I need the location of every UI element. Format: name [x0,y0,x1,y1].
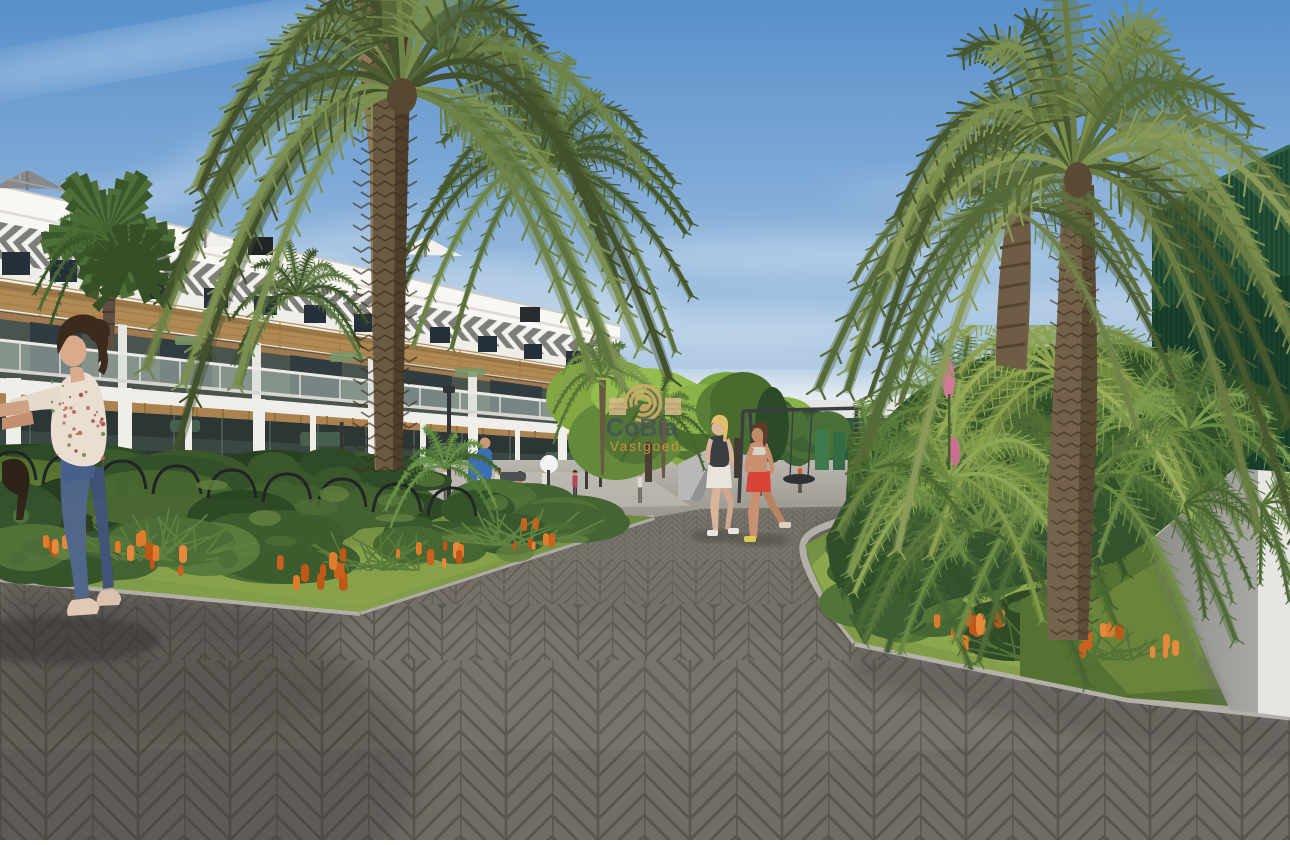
svg-text:CoBía: CoBía [606,414,679,442]
svg-text:Vastgoed: Vastgoed [610,439,680,454]
